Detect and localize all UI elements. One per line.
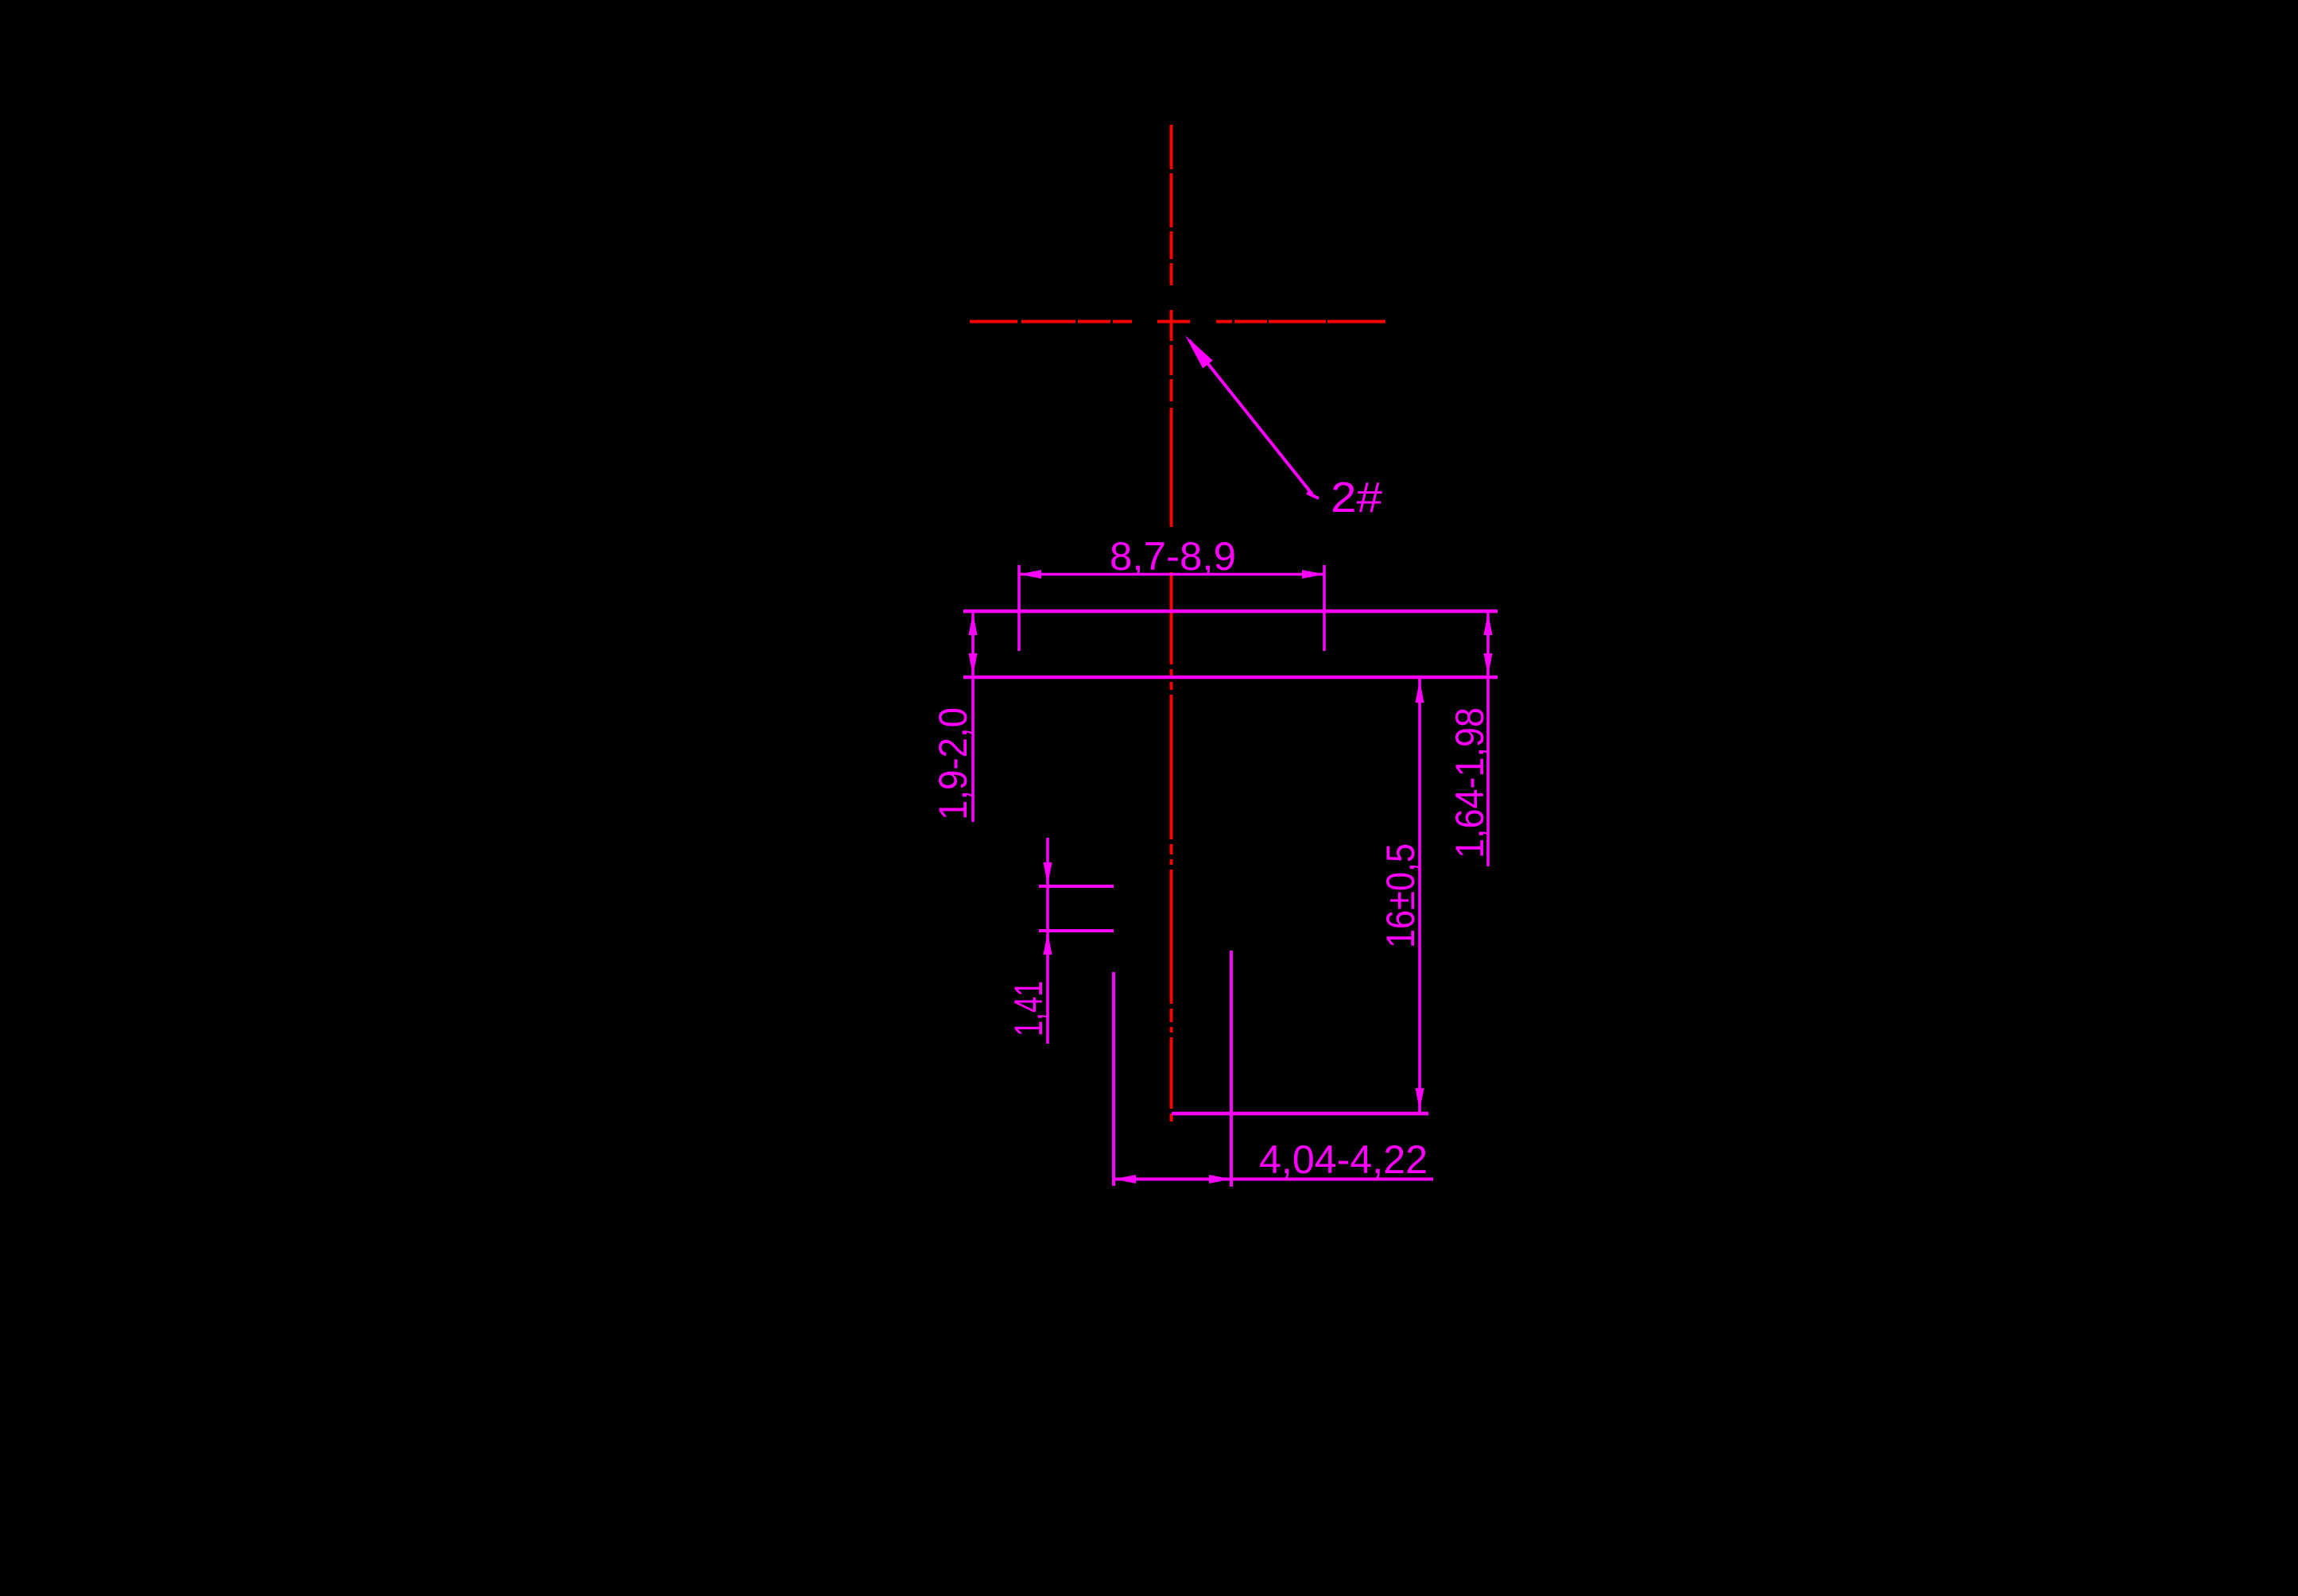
svg-text:1,64-1,98: 1,64-1,98 [1447, 707, 1492, 858]
svg-text:1,41: 1,41 [1006, 981, 1051, 1036]
svg-text:16±0,5: 16±0,5 [1378, 843, 1423, 948]
svg-text:2#: 2# [1331, 474, 1382, 521]
svg-text:1,9-2,0: 1,9-2,0 [931, 707, 975, 820]
svg-text:8,7-8,9: 8,7-8,9 [1110, 534, 1236, 579]
svg-text:4,04-4,22: 4,04-4,22 [1259, 1137, 1428, 1182]
